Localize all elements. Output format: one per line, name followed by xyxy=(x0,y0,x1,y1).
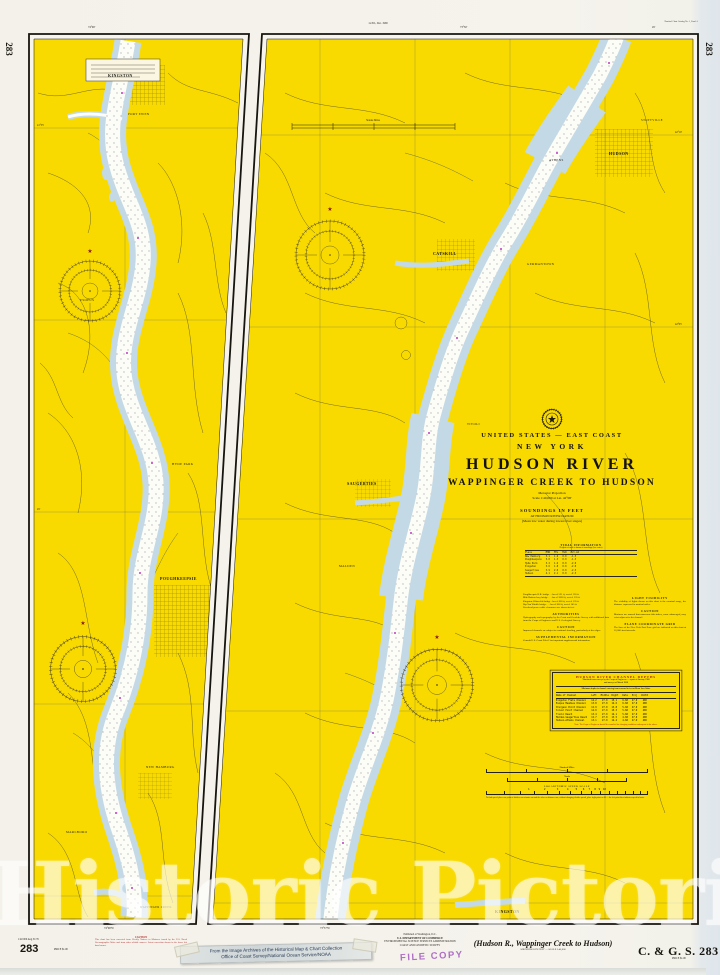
place-label-new-hamburg: NEW HAMBURG xyxy=(146,765,175,769)
datum-subnote: (Mean low water during lowest river stag… xyxy=(424,519,680,523)
place-label-malden: MALDEN xyxy=(339,564,355,568)
tidal-table-subtitle: Heights referred to datum of soundings (… xyxy=(525,547,637,549)
caution2-body: Mariners are warned that numerous fish s… xyxy=(614,613,686,620)
log-speed-scale-note: To find speed: place one point of divide… xyxy=(486,797,648,800)
lon-label: 73°50' xyxy=(460,26,467,29)
edition-note: 1st Ed., Dec. 1968 xyxy=(318,22,438,25)
channel-table-row: Hudson–Athens Channel 13.1 27.0 14.4 4-6… xyxy=(556,719,676,722)
bottom-chart-subtitle: SOUNDINGS IN FEET — SCALE 1:40,000 xyxy=(448,948,638,951)
yards-bar xyxy=(507,778,627,782)
place-label-poughkeepsie: POUGHKEEPSIE xyxy=(160,576,197,581)
star-symbol-icon: ★ xyxy=(434,634,439,641)
statute-miles-scale-label: Statute Miles xyxy=(366,119,380,122)
star-symbol-icon: ★ xyxy=(80,620,85,627)
chart-sheet: ★ ★ KINGSTON PORT EWEN ESOPUS HYDE PARK … xyxy=(0,0,720,975)
channel-table-footnote: Note: The Corps of Engineers should be c… xyxy=(556,724,676,726)
title-block: UNITED STATES — EAST COAST NEW YORK HUDS… xyxy=(424,408,680,523)
nautical-miles-bar xyxy=(486,769,648,773)
place-label-port-ewen: PORT EWEN xyxy=(128,112,150,116)
file-copy-stamp: FILE COPY xyxy=(400,949,464,963)
channel-depths-table: HUDSON RIVER CHANNEL DEPTHS Tabulated fr… xyxy=(552,672,680,729)
title-region: UNITED STATES — EAST COAST xyxy=(424,432,680,439)
chart-title: HUDSON RIVER xyxy=(424,456,680,474)
coast-survey-seal-icon xyxy=(541,408,563,430)
edition-date-note: 1:40 000 Aug 31/76 xyxy=(18,938,39,941)
place-label-hudson: HUDSON xyxy=(609,151,629,156)
lat-label: 45' xyxy=(37,508,41,511)
place-label-kingston: KINGSTON xyxy=(108,73,133,78)
place-label-wappinger-creek: WAPPINGER CREEK xyxy=(140,906,172,909)
soundings-note: SOUNDINGS IN FEET xyxy=(424,508,680,513)
grid-body: The lines of the New York East Zone grid… xyxy=(614,626,686,633)
side-chart-number-right: 283 xyxy=(704,42,714,56)
channel-table-header: Name of Channel Left Middle Right Date P… xyxy=(556,692,676,699)
place-label-kingston-2: KINGSTON xyxy=(495,909,520,914)
place-label-marlboro: MARLBORO xyxy=(66,830,88,834)
lon-label: 73°57'W xyxy=(320,927,330,930)
caution-body: Improved channels are subject to continu… xyxy=(523,629,609,632)
lon-label: 74°00' xyxy=(88,26,95,29)
datum-note: AT HUDSON RIVER DATUM xyxy=(424,514,680,518)
star-symbol-icon: ★ xyxy=(87,248,92,255)
lat-label: 42°10' xyxy=(675,131,682,134)
channel-table-subtitle2: and surveys of March 1968 xyxy=(556,682,676,685)
place-label-hyde-park: HYDE PARK xyxy=(172,462,194,466)
price-label-left: PRICE $1.00 xyxy=(54,948,68,951)
bridge-clearance-note: Overhead power cable clearances are show… xyxy=(523,606,609,609)
place-label-stottville: STOTTVILLE xyxy=(641,118,663,122)
place-label-athens: ATHENS xyxy=(549,158,564,162)
place-label-esopus: ESOPUS xyxy=(80,298,94,302)
lon-label: 74°00'W xyxy=(104,927,114,930)
light-visibility-body: The visibility of lights shown on this c… xyxy=(614,600,686,607)
chart-number: 283 xyxy=(20,943,38,955)
chart-notes-column-b: LIGHT VISIBILITY The visibility of light… xyxy=(614,596,686,633)
chart-subtitle: WAPPINGER CREEK TO HUDSON xyxy=(424,478,680,488)
bottom-title-block: (Hudson R., Wappinger Creek to Hudson) S… xyxy=(448,939,638,951)
chart-notes-column-a: Poughkeepsie R.R. bridge . . hor cl 521 … xyxy=(523,593,609,642)
star-symbol-icon: ★ xyxy=(327,206,332,213)
lat-label: 41°55' xyxy=(37,124,44,127)
lon-label: 45' xyxy=(652,26,655,29)
place-label-saugerties: SAUGERTIES xyxy=(347,481,377,486)
title-state: NEW YORK xyxy=(424,442,680,451)
scale-bars: Nautical Miles Yards LOGARITHMIC SPEED S… xyxy=(486,766,648,799)
tidal-information-table: TIDAL INFORMATION Heights referred to da… xyxy=(525,543,637,577)
place-label-catskill: CATSKILL xyxy=(433,251,457,256)
supplemental-body: Consult U.S. Coast Pilot 2 for important… xyxy=(523,639,609,642)
catalog-note: Nautical Chart Catalog No. 1, Panel A xyxy=(590,21,698,23)
side-chart-number-left: 283 xyxy=(4,42,14,56)
authorities-body: Hydrography and topography by the Coast … xyxy=(523,616,609,623)
tidal-table-row: Hudson 4.1 2.1 0.0 -2.5 xyxy=(525,572,637,576)
scale-note: Scale 1:40,000 at Lat. 42°08' xyxy=(424,496,680,501)
lat-label: 42°05' xyxy=(675,323,682,326)
price-label-right: PRICE $1.00 xyxy=(672,957,686,960)
log-speed-scale-bar xyxy=(486,791,648,795)
bottom-chart-title: (Hudson R., Wappinger Creek to Hudson) xyxy=(448,939,638,948)
channel-table-note: Minimum depths in channel entering from … xyxy=(556,686,676,691)
place-label-germantown: GERMANTOWN xyxy=(527,262,555,266)
